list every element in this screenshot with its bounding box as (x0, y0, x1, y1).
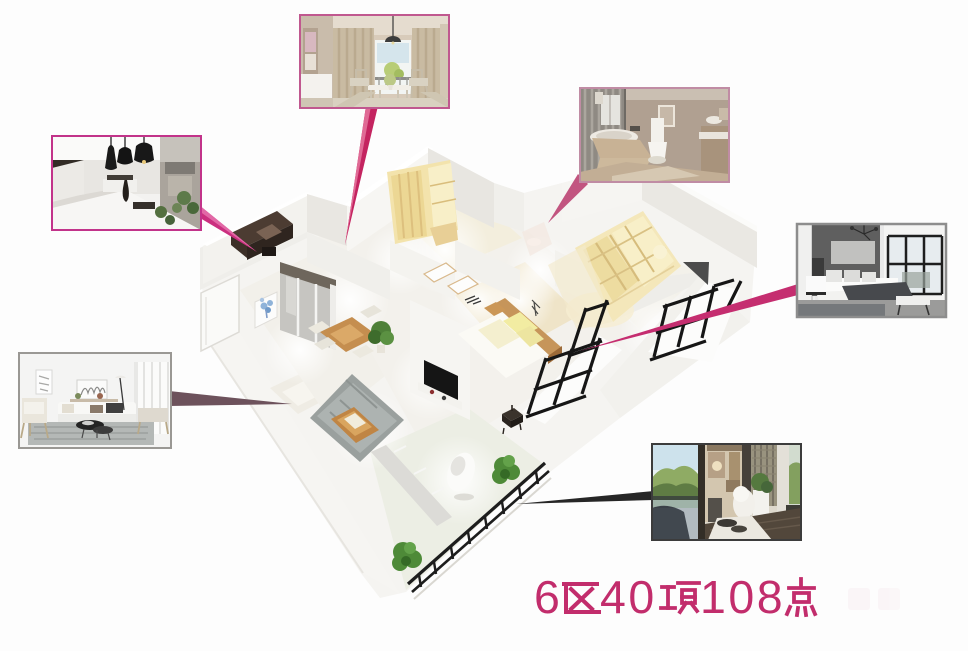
svg-text:40: 40 (600, 571, 657, 623)
svg-text:108: 108 (700, 571, 785, 623)
svg-text:6: 6 (534, 571, 561, 623)
